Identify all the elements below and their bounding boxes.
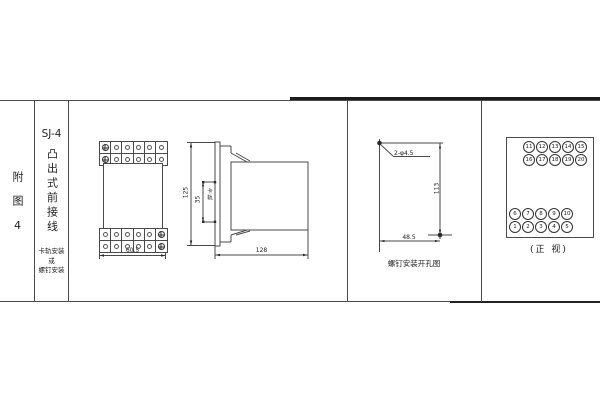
figure-page: 附图4 SJ-4 凸出式前接线 卡轨安装 或 螺钉安装 60.5 bbox=[0, 0, 600, 400]
terminal-caption: (正 视) bbox=[506, 242, 592, 255]
terminal-cell bbox=[122, 229, 133, 241]
rail-label: 卡轨 bbox=[205, 188, 213, 201]
screw-icon bbox=[102, 144, 109, 151]
terminal-hole-icon bbox=[159, 145, 164, 150]
terminal-17: 17 bbox=[536, 154, 548, 166]
terminal-hole-icon bbox=[159, 157, 164, 162]
terminal-hole-icon bbox=[114, 232, 119, 237]
terminal-cell bbox=[111, 142, 122, 154]
terminal-20: 20 bbox=[575, 154, 587, 166]
drill-caption: 螺钉安装开孔图 bbox=[347, 258, 481, 269]
terminal-cell bbox=[134, 142, 145, 154]
table-line-2 bbox=[68, 100, 69, 302]
terminal-hole-icon bbox=[103, 232, 108, 237]
terminal-cell bbox=[122, 142, 133, 154]
terminal-2: 2 bbox=[522, 221, 534, 233]
drill-width-dim: 48.5 bbox=[390, 234, 428, 241]
terminal-hole-icon bbox=[147, 232, 152, 237]
terminal-11: 11 bbox=[523, 141, 535, 153]
terminal-8: 8 bbox=[535, 208, 547, 220]
terminal-hole-icon bbox=[114, 157, 119, 162]
mount-note-line2: 或 bbox=[35, 257, 68, 267]
table-border-top bbox=[0, 100, 600, 101]
drill-height-dim: 113 bbox=[434, 181, 441, 197]
terminal-19: 19 bbox=[562, 154, 574, 166]
terminal-hole-icon bbox=[114, 145, 119, 150]
scan-edge-bottom bbox=[450, 301, 600, 303]
terminal-cell bbox=[145, 142, 156, 154]
terminal-18: 18 bbox=[549, 154, 561, 166]
drill-hole-label: 2-φ4.5 bbox=[394, 150, 413, 157]
terminal-hole-icon bbox=[125, 145, 130, 150]
terminal-row-16-20: 1617181920 bbox=[523, 154, 588, 166]
terminal-hole-icon bbox=[125, 232, 130, 237]
scan-edge-top bbox=[290, 97, 600, 100]
terminal-hole-icon bbox=[147, 157, 152, 162]
terminal-hole-icon bbox=[147, 145, 152, 150]
side-height-dim: 125 bbox=[183, 185, 190, 201]
terminal-14: 14 bbox=[562, 141, 574, 153]
terminal-7: 7 bbox=[522, 208, 534, 220]
terminal-12: 12 bbox=[536, 141, 548, 153]
terminal-5: 5 bbox=[561, 221, 573, 233]
terminal-hole-icon bbox=[136, 145, 141, 150]
terminal-row-11-15: 1112131415 bbox=[523, 141, 588, 153]
model-type-cell: 凸出式前接线 bbox=[36, 148, 67, 246]
figure-number-cell: 附图4 bbox=[0, 168, 34, 248]
terminal-cell bbox=[111, 229, 122, 241]
table-line-3 bbox=[347, 100, 348, 302]
terminal-hole-icon bbox=[125, 157, 130, 162]
side-depth-dim: 128 bbox=[215, 247, 308, 254]
terminal-4: 4 bbox=[548, 221, 560, 233]
terminal-13: 13 bbox=[549, 141, 561, 153]
terminal-15: 15 bbox=[575, 141, 587, 153]
terminal-hole-icon bbox=[136, 232, 141, 237]
side-rail-dim: 35 bbox=[195, 192, 202, 208]
terminal-hole-icon bbox=[136, 157, 141, 162]
screw-terminal-cell bbox=[100, 142, 111, 154]
terminal-9: 9 bbox=[548, 208, 560, 220]
terminal-cell bbox=[134, 229, 145, 241]
model-type-label: 凸出式前接线 bbox=[44, 148, 60, 235]
terminal-10: 10 bbox=[561, 208, 573, 220]
figure-number-label: 附图4 bbox=[9, 171, 25, 245]
front-view-body bbox=[103, 163, 163, 230]
mount-note: 卡轨安装 或 螺钉安装 bbox=[35, 247, 68, 276]
mount-note-line3: 螺钉安装 bbox=[35, 266, 68, 276]
terminal-1: 1 bbox=[509, 221, 521, 233]
mount-note-line1: 卡轨安装 bbox=[35, 247, 68, 257]
terminal-16: 16 bbox=[523, 154, 535, 166]
terminal-cell bbox=[156, 142, 167, 154]
terminal-3: 3 bbox=[535, 221, 547, 233]
screw-icon bbox=[158, 231, 165, 238]
model-label: SJ-4 bbox=[36, 128, 67, 140]
screw-icon bbox=[102, 156, 109, 163]
front-width-dim: 60.5 bbox=[99, 247, 166, 254]
terminal-cell bbox=[145, 229, 156, 241]
screw-terminal-cell bbox=[156, 229, 167, 241]
terminal-row-1-5: 12345 bbox=[509, 221, 574, 233]
terminal-6: 6 bbox=[509, 208, 521, 220]
terminal-cell bbox=[100, 229, 111, 241]
terminal-row-6-10: 678910 bbox=[509, 208, 574, 220]
table-line-4 bbox=[481, 100, 482, 302]
